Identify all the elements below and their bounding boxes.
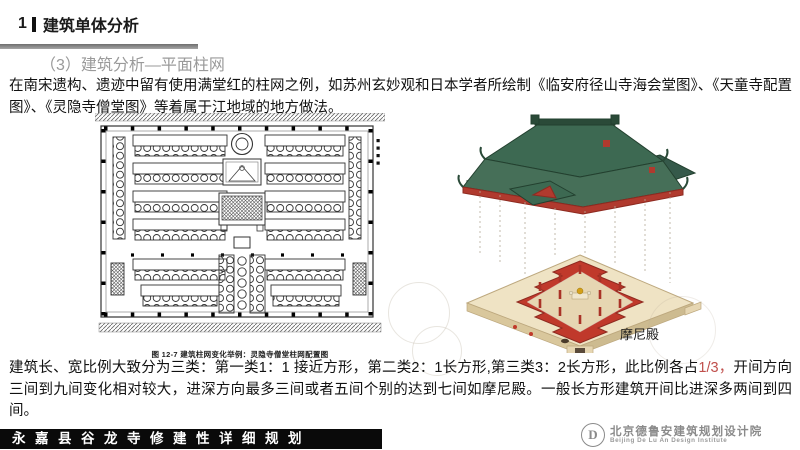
- body-paragraph-2-lead: 建筑长、宽比例大致分为三类：第一类1：1 接近方形，第二类2：1长方形,第三类3…: [9, 360, 698, 376]
- logo-name-en: Beijing De Lu An Design Institute: [610, 438, 762, 445]
- title-divider-bar-icon: [32, 17, 36, 32]
- bench-left-vertical: [113, 137, 125, 239]
- central-axis-features: [219, 134, 265, 314]
- plan-drawing: [95, 113, 385, 340]
- page-title: 1 建筑单体分析: [18, 12, 139, 36]
- slide: 1 建筑单体分析 （3）建筑分析—平面柱网 在南宋遗构、遗迹中留有使用满堂红的柱…: [0, 0, 800, 450]
- ground-hatch-bottom: [99, 323, 381, 332]
- logo-name-cn: 北京德鲁安建筑规划设计院: [610, 426, 762, 438]
- temple-roof: [459, 115, 696, 214]
- footer-title-bar: 永嘉县谷龙寺修建性详细规划: [0, 429, 382, 449]
- section-subtitle: （3）建筑分析—平面柱网: [40, 51, 225, 75]
- ground-hatch-top: [95, 113, 385, 121]
- logo-text: 北京德鲁安建筑规划设计院 Beijing De Lu An Design Ins…: [610, 426, 762, 445]
- plan-figure: 图 12-7 建筑柱网变化举例：灵隐寺僧堂柱网配置图: [95, 113, 385, 360]
- bench-right-vertical: [349, 137, 361, 239]
- section-number: 1: [18, 15, 27, 33]
- margin-annotation-marks: [377, 139, 380, 165]
- ratio-highlight: 1/3，: [698, 360, 733, 376]
- logo-letter: D: [588, 427, 597, 443]
- body-paragraph-2: 建筑长、宽比例大致分为三类：第一类1：1 接近方形，第二类2：1长方形,第三类3…: [9, 358, 792, 423]
- footer-project-title: 永嘉县谷龙寺修建性详细规划: [12, 431, 311, 446]
- logo-d-circle-icon: D: [581, 423, 605, 447]
- watermark-seal-icon: [648, 296, 716, 364]
- header-underline: [0, 44, 198, 49]
- page-title-text: 建筑单体分析: [43, 12, 139, 36]
- institute-logo: D 北京德鲁安建筑规划设计院 Beijing De Lu An Design I…: [581, 423, 762, 447]
